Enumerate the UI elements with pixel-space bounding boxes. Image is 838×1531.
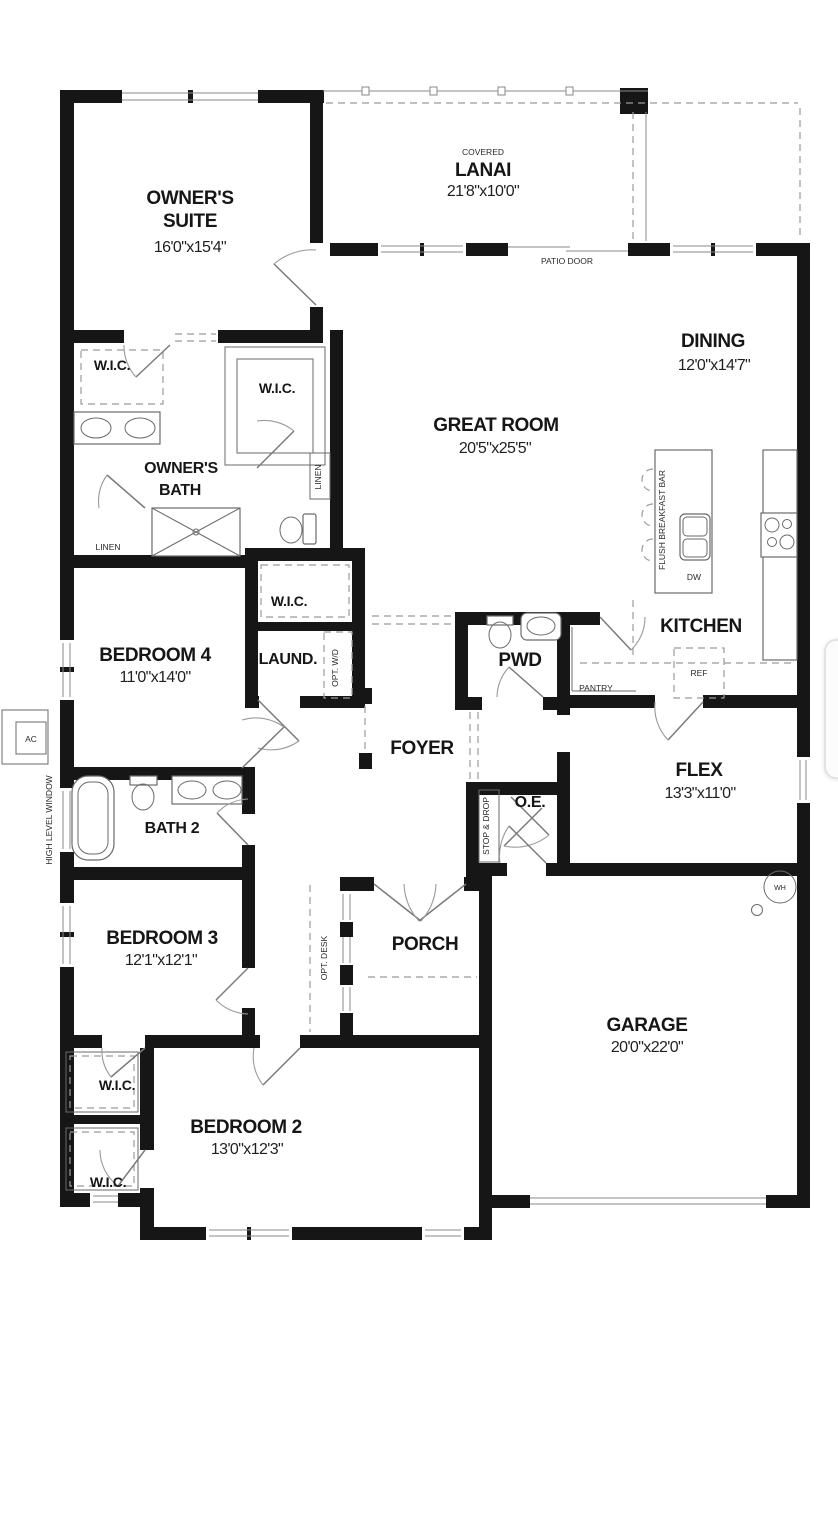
room-label-porch: PORCH — [392, 934, 459, 955]
vanity-bath2 — [172, 776, 242, 804]
wic-label-5: W.I.C. — [90, 1174, 126, 1190]
opt-wd-label: OPT. W/D — [330, 649, 340, 687]
wic-label-1: W.I.C. — [94, 357, 130, 373]
room-label-foyer: FOYER — [390, 738, 454, 759]
cooktop-icon — [761, 513, 797, 557]
room-dims-owners-suite: 16'0"x15'4" — [154, 239, 226, 256]
linen-label-1: LINEN — [313, 464, 323, 489]
room-dims-lanai: 21'8"x10'0" — [447, 183, 519, 200]
linen-label-2: LINEN — [95, 542, 120, 552]
toilet-icon — [487, 616, 513, 625]
wic-label-2: W.I.C. — [259, 380, 295, 396]
room-label-flex: FLEX — [676, 760, 724, 781]
lanai-covered-label: COVERED — [462, 147, 504, 157]
room-dims-bedroom4: 11'0"x14'0" — [119, 669, 190, 686]
room-label-great-room: GREAT ROOM — [433, 415, 558, 436]
breakfast-bar-label: FLUSH BREAKFAST BAR — [657, 470, 667, 570]
toilet-icon — [303, 514, 316, 544]
floor-plan: OWNER'S SUITE 16'0"x15'4" COVERED LANAI … — [0, 0, 838, 1531]
dw-label: DW — [687, 572, 701, 582]
room-label-owners-suite: OWNER'S — [146, 188, 233, 209]
room-dims-garage: 20'0"x22'0" — [611, 1039, 683, 1056]
room-label-bedroom4: BEDROOM 4 — [99, 645, 211, 666]
room-dims-flex: 13'3"x11'0" — [664, 785, 735, 802]
room-label-bath2: BATH 2 — [145, 820, 200, 837]
wh-label: WH — [774, 885, 786, 892]
ac-label: AC — [25, 734, 37, 744]
pantry-label: PANTRY — [579, 683, 613, 693]
stop-drop-label: STOP & DROP — [481, 797, 491, 855]
vanity-owner — [74, 412, 160, 444]
room-label-owners-bath: OWNER'S — [144, 460, 218, 477]
room-label-laundry: LAUND. — [259, 651, 318, 668]
room-label-oe: O.E. — [515, 794, 546, 811]
ref-label: REF — [691, 668, 708, 678]
wic-label-3: W.I.C. — [271, 593, 307, 609]
room-label-lanai: LANAI — [455, 160, 511, 181]
room-dims-great-room: 20'5"x25'5" — [459, 440, 531, 457]
opt-desk-label: OPT. DESK — [319, 935, 329, 980]
wic-label-4: W.I.C. — [99, 1077, 135, 1093]
wic-shelves — [225, 347, 325, 465]
room-label-bedroom3: BEDROOM 3 — [106, 928, 217, 949]
room-label-owners-suite-2: SUITE — [163, 211, 217, 232]
room-dims-bedroom3: 12'1"x12'1" — [125, 952, 197, 969]
room-label-owners-bath-2: BATH — [159, 482, 201, 499]
screenshot-root: { "colors": { "background": "#ffffff", "… — [0, 0, 838, 1531]
high-level-window-label: HIGH LEVEL WINDOW — [44, 775, 54, 864]
room-label-dining: DINING — [681, 331, 745, 352]
room-label-pwd: PWD — [498, 650, 541, 671]
room-label-garage: GARAGE — [607, 1015, 688, 1036]
room-label-bedroom2: BEDROOM 2 — [190, 1117, 301, 1138]
room-label-kitchen: KITCHEN — [660, 616, 742, 637]
side-overlay-card[interactable] — [824, 639, 838, 779]
patio-door-label: PATIO DOOR — [541, 256, 593, 266]
room-dims-dining: 12'0"x14'7" — [678, 357, 750, 374]
room-dims-bedroom2: 13'0"x12'3" — [211, 1141, 283, 1158]
kitchen-sink-icon — [680, 514, 710, 560]
